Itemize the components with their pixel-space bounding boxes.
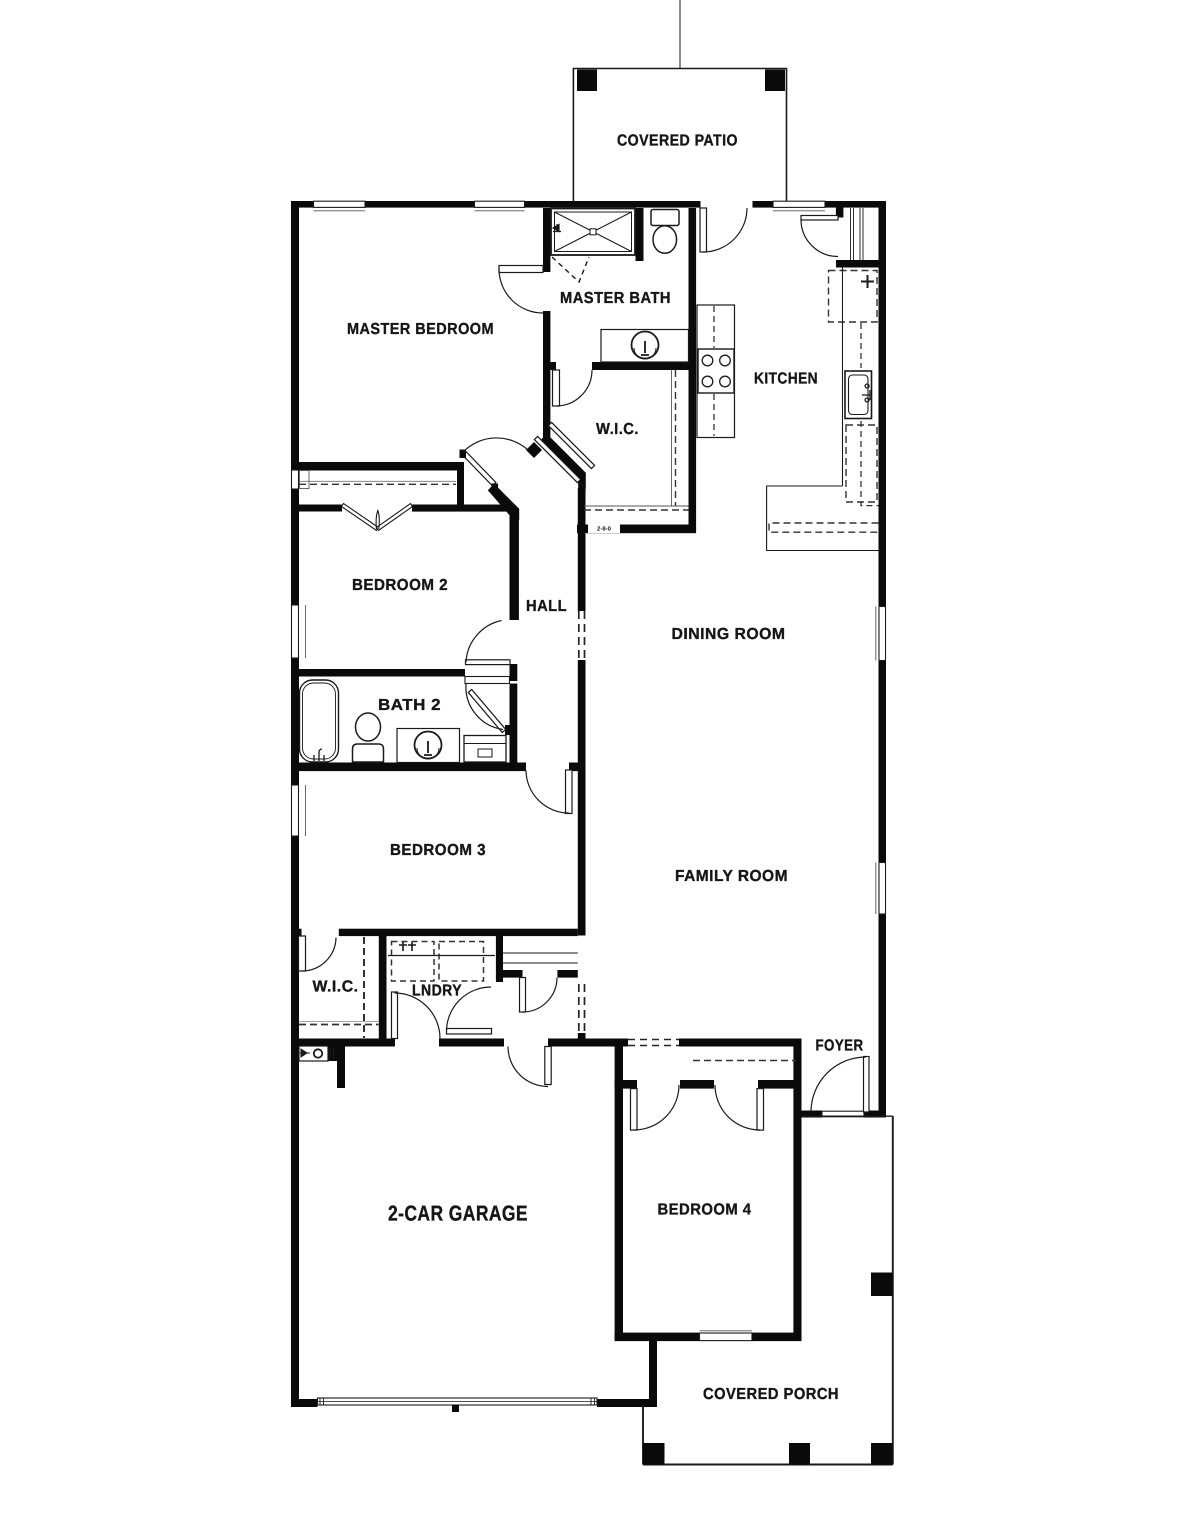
svg-text:BATH 2: BATH 2 — [378, 697, 441, 714]
svg-text:LNDRY: LNDRY — [412, 983, 462, 1000]
svg-text:FOYER: FOYER — [816, 1038, 864, 1055]
svg-text:FAMILY ROOM: FAMILY ROOM — [675, 868, 788, 885]
svg-text:BEDROOM 3: BEDROOM 3 — [390, 842, 486, 859]
svg-text:MASTER BEDROOM: MASTER BEDROOM — [347, 321, 494, 338]
svg-text:KITCHEN: KITCHEN — [754, 371, 818, 388]
svg-text:COVERED PORCH: COVERED PORCH — [703, 1386, 839, 1403]
svg-text:BEDROOM 2: BEDROOM 2 — [352, 577, 448, 594]
svg-text:BEDROOM 4: BEDROOM 4 — [658, 1202, 752, 1219]
svg-text:COVERED PATIO: COVERED PATIO — [617, 133, 738, 150]
svg-text:HALL: HALL — [526, 598, 567, 615]
svg-text:MASTER BATH: MASTER BATH — [560, 290, 671, 307]
svg-text:2-8-0: 2-8-0 — [597, 526, 612, 533]
svg-text:DINING ROOM: DINING ROOM — [672, 626, 786, 643]
svg-text:2-CAR GARAGE: 2-CAR GARAGE — [388, 1202, 528, 1226]
svg-text:W.I.C.: W.I.C. — [596, 421, 639, 438]
svg-text:W.I.C.: W.I.C. — [313, 979, 359, 996]
